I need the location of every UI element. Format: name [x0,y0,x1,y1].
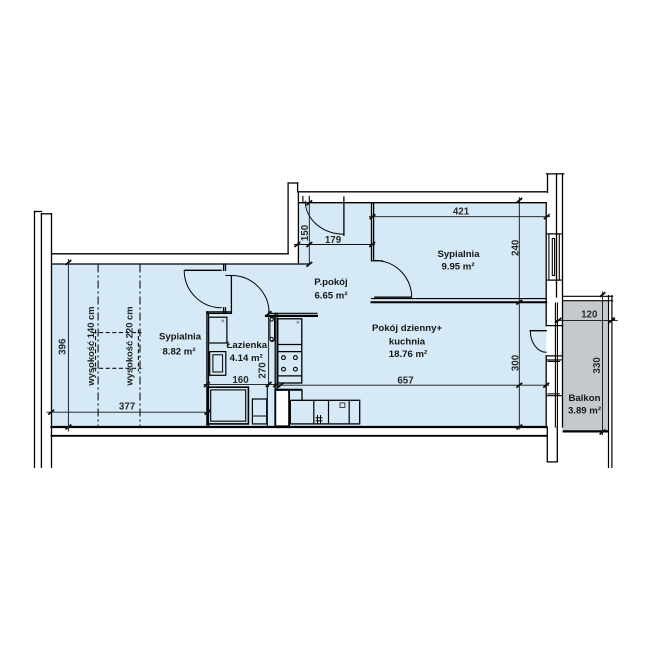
svg-text:300: 300 [510,354,521,371]
svg-text:120: 120 [581,310,598,321]
svg-text:18.76 m²: 18.76 m² [389,349,427,360]
svg-text:kuchnia: kuchnia [389,337,426,348]
svg-text:160: 160 [232,375,249,386]
svg-text:377: 377 [119,402,136,413]
svg-text:wysokość 220 cm: wysokość 220 cm [124,306,135,386]
svg-text:Balkon: Balkon [569,393,601,404]
svg-text:Sypialnia: Sypialnia [437,249,480,260]
svg-text:150: 150 [300,224,311,241]
svg-text:4.14 m²: 4.14 m² [230,353,263,364]
svg-text:657: 657 [397,375,414,386]
svg-text:Łazienka: Łazienka [227,340,268,351]
svg-text:240: 240 [510,239,521,256]
svg-text:421: 421 [453,207,470,218]
svg-text:wysokość 140 cm: wysokość 140 cm [85,306,96,386]
svg-text:330: 330 [592,357,603,374]
svg-text:270: 270 [258,362,269,379]
svg-text:Sypialnia: Sypialnia [159,331,202,342]
svg-text:9.95 m²: 9.95 m² [441,261,474,272]
svg-text:179: 179 [325,235,342,246]
svg-text:8.82 m²: 8.82 m² [162,346,195,357]
svg-text:P.pokój: P.pokój [314,277,347,288]
svg-text:3.89 m²: 3.89 m² [568,405,601,416]
svg-text:396: 396 [57,338,68,355]
svg-text:6.65 m²: 6.65 m² [314,290,347,301]
svg-text:Pokój dzienny+: Pokój dzienny+ [372,323,443,334]
